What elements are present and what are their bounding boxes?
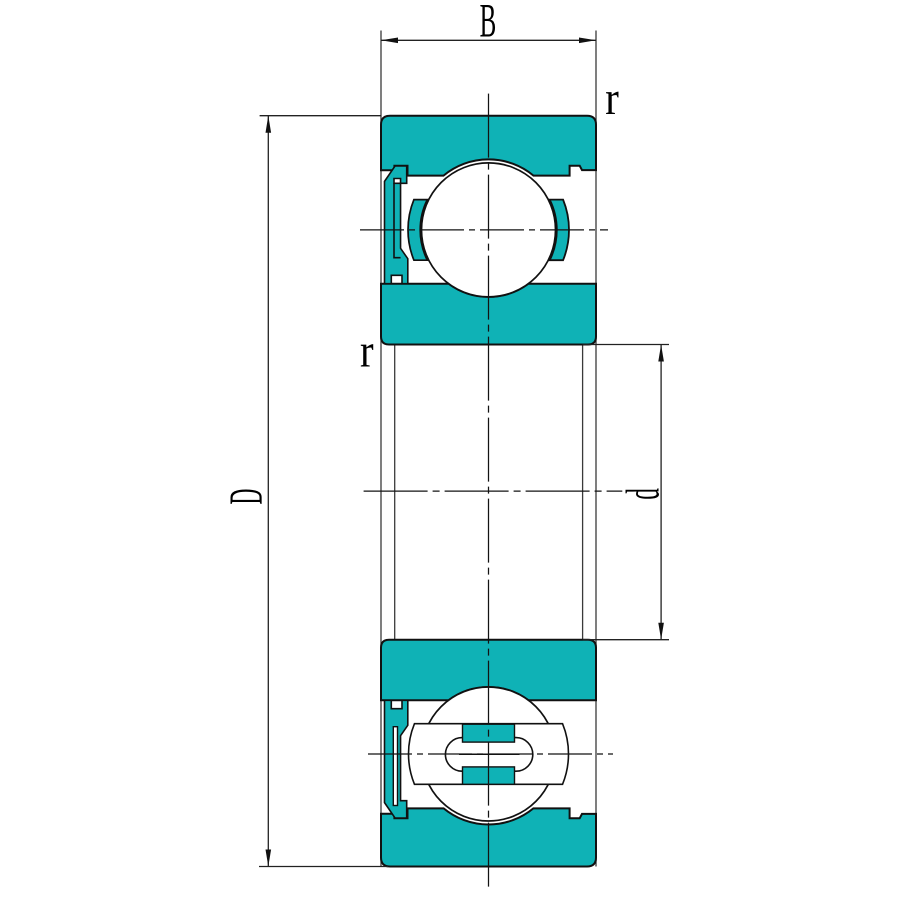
svg-text:D: D xyxy=(221,489,274,505)
svg-text:d: d xyxy=(616,488,670,500)
svg-text:B: B xyxy=(480,0,497,48)
svg-text:r: r xyxy=(605,71,619,125)
svg-text:r: r xyxy=(360,324,374,378)
